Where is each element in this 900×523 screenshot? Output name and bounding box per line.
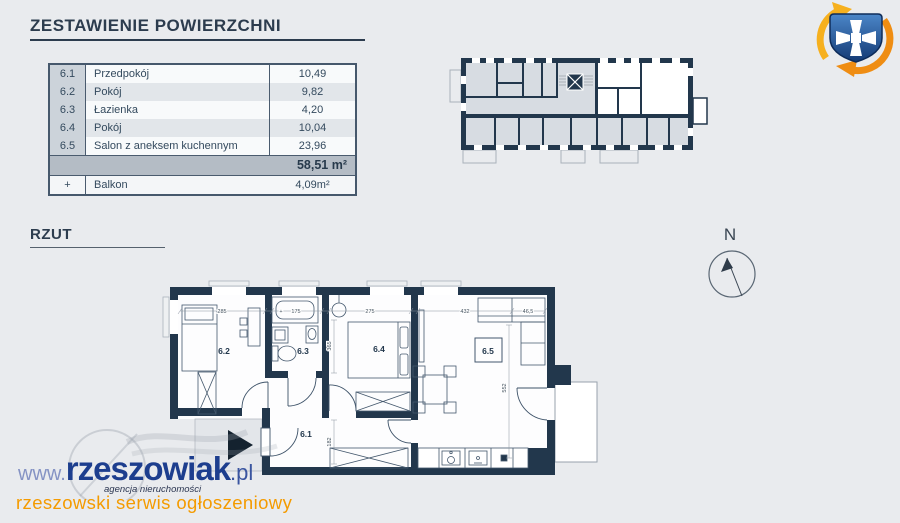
dim-label: 275	[365, 309, 374, 315]
row-number: 6.2	[50, 83, 86, 102]
row-area: 4,09m²	[270, 176, 355, 194]
row-number: 6.5	[50, 137, 86, 156]
table-row: 6.1 Przedpokój 10,49	[50, 65, 355, 83]
flyer-page: ZESTAWIENIE POWIERZCHNI 6.1 Przedpokój 1…	[0, 0, 900, 523]
rzut-label: RZUT	[30, 226, 72, 243]
row-area: 23,96	[270, 137, 355, 156]
url-tld: .pl	[230, 460, 253, 485]
dim-label: +	[279, 309, 282, 315]
page-title: ZESTAWIENIE POWIERZCHNI	[30, 16, 281, 36]
row-area: 9,82	[270, 83, 355, 102]
compass-circle	[709, 251, 755, 297]
wall-stub	[555, 365, 571, 385]
row-area: 4,20	[270, 101, 355, 120]
dim-label: 285	[217, 309, 226, 315]
brand-logo-icon	[812, 0, 900, 78]
row-number: 6.4	[50, 119, 86, 138]
logo-arrow-orange-head	[836, 60, 857, 77]
room-label: 6.4	[373, 344, 385, 354]
row-number: 6.1	[50, 65, 86, 84]
room-label: 6.2	[218, 346, 230, 356]
table-row: 6.3 Łazienka 4,20	[50, 101, 355, 119]
watermark: www.rzeszowiak.pl agencja nieruchomości …	[12, 420, 332, 520]
room-label: 6.3	[297, 346, 309, 356]
balcony-row: + Balkon 4,09m²	[50, 176, 355, 194]
row-name: Balkon	[86, 176, 270, 194]
building-overview-plan	[448, 48, 713, 173]
row-name: Łazienka	[86, 101, 270, 120]
table-row: 6.5 Salon z aneksem kuchennym 23,96	[50, 137, 355, 155]
url-prefix: www.	[18, 463, 66, 485]
service-tagline: rzeszowski serwis ogłoszeniowy	[16, 492, 292, 514]
row-name: Pokój	[86, 83, 270, 102]
north-label: N	[724, 225, 736, 244]
dim-label: 432	[460, 309, 469, 315]
table-row: 6.4 Pokój 10,04	[50, 119, 355, 137]
url-brand: rzeszowiak	[66, 450, 230, 487]
dim-label: 46,5	[523, 309, 534, 315]
watermark-url: www.rzeszowiak.pl	[18, 450, 253, 488]
table-row: 6.2 Pokój 9,82	[50, 83, 355, 101]
north-compass: N	[697, 222, 767, 312]
room-label: 6.5	[482, 346, 494, 356]
total-area: 58,51 m²	[50, 155, 355, 176]
dim-label: 175	[291, 309, 300, 315]
row-name: Przedpokój	[86, 65, 270, 84]
row-number: 6.3	[50, 101, 86, 120]
title-underline	[30, 39, 365, 41]
row-number: +	[50, 176, 86, 194]
row-name: Salon z aneksem kuchennym	[86, 137, 270, 156]
rzut-underline	[30, 247, 165, 248]
balcony	[555, 382, 597, 462]
dim-label: 552	[502, 383, 508, 392]
row-area: 10,49	[270, 65, 355, 84]
area-table: 6.1 Przedpokój 10,49 6.2 Pokój 9,82 6.3 …	[48, 63, 357, 196]
dim-label: 365	[327, 341, 333, 350]
row-name: Pokój	[86, 119, 270, 138]
row-area: 10,04	[270, 119, 355, 138]
